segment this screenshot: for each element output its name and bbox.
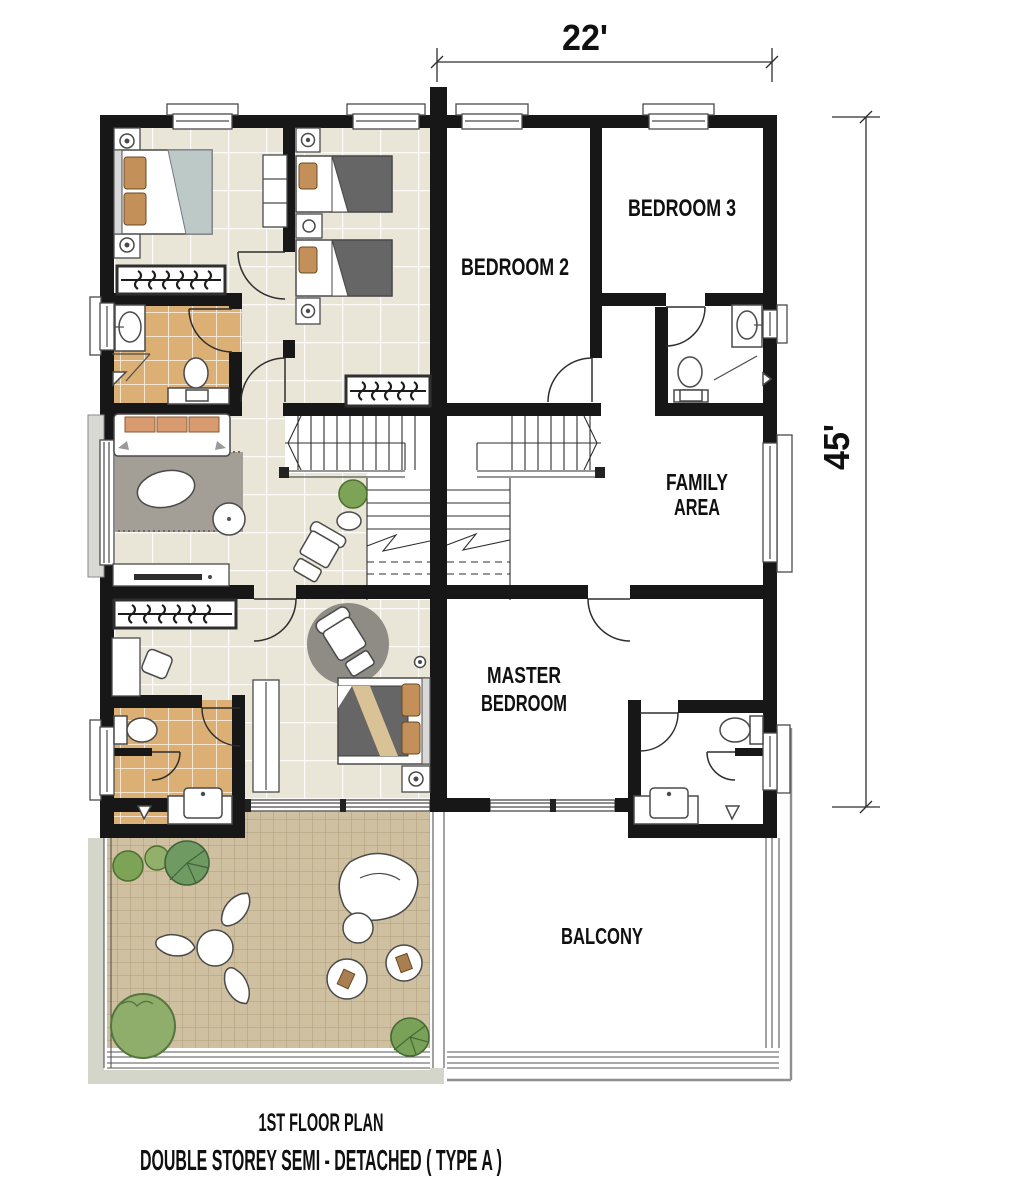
window-master-bath-left — [90, 720, 114, 800]
tv-console-icon — [113, 564, 229, 586]
sofa-icon — [114, 414, 230, 456]
door-bedroom3-right — [666, 307, 705, 346]
wardrobe-icon — [117, 266, 225, 294]
outdoor-table-icon — [343, 913, 373, 943]
toilet-icon — [680, 390, 702, 401]
staircase-right — [447, 415, 605, 600]
floor-plan-drawing: BEDROOM 2 BEDROOM 3 FAMILY AREA MASTER B… — [0, 0, 1012, 1202]
master-bed-icon — [338, 678, 430, 764]
window-family-right — [763, 435, 792, 572]
wardrobe-icon — [114, 600, 236, 628]
party-wall — [430, 87, 447, 812]
side-table-icon — [337, 512, 361, 530]
label-family-area-1: FAMILY — [666, 469, 728, 495]
label-master-1: MASTER — [487, 662, 561, 688]
label-family-area-2: AREA — [674, 494, 720, 520]
wardrobe-icon — [346, 376, 430, 406]
plant-icon — [111, 994, 175, 1058]
plan-title: 1ST FLOOR PLAN — [259, 1109, 384, 1137]
dimension-depth: 45' — [816, 111, 880, 813]
window-bedroom2-top — [456, 104, 528, 129]
label-bedroom2: BEDROOM 2 — [461, 254, 569, 281]
dresser-icon — [263, 155, 287, 227]
door-bedroom2-right — [548, 358, 592, 402]
toilet-icon — [750, 716, 763, 744]
window-bedroom3-top — [643, 104, 714, 129]
window-bath3-right — [763, 305, 787, 343]
toilet-icon — [186, 390, 208, 401]
label-bedroom3: BEDROOM 3 — [628, 195, 736, 222]
dimension-depth-label: 45' — [816, 424, 857, 470]
twin-bed-icon — [296, 156, 392, 212]
plant-icon — [113, 851, 143, 881]
right-sliding-door — [490, 799, 615, 812]
twin-bed-icon — [296, 240, 392, 296]
window-master-bath-right — [763, 725, 790, 793]
plant-icon — [339, 480, 367, 508]
label-master-2: BEDROOM — [481, 690, 567, 716]
queen-bed-icon — [114, 150, 212, 234]
dimension-width: 22' — [431, 17, 778, 82]
window-bedroomB-top — [347, 104, 425, 129]
plant-icon — [391, 1018, 429, 1056]
window-bedroom1-top — [167, 104, 238, 129]
door-master-right — [588, 599, 630, 641]
master-bath-right-fixtures — [634, 716, 763, 824]
bathroom3-right-fixtures — [674, 305, 771, 402]
desk-icon — [112, 638, 140, 696]
shower-drain-icon — [726, 806, 739, 819]
floor-plan-page: BEDROOM 2 BEDROOM 3 FAMILY AREA MASTER B… — [0, 0, 1012, 1202]
plan-subtitle: DOUBLE STOREY SEMI - DETACHED ( TYPE A ) — [140, 1145, 502, 1177]
plant-icon — [165, 841, 209, 885]
door-shower-right — [707, 752, 735, 780]
outdoor-chair-icon — [327, 959, 367, 999]
toilet-icon — [114, 716, 127, 744]
dimension-width-label: 22' — [562, 17, 608, 58]
outdoor-chair-icon — [386, 945, 422, 981]
window-bath-left — [90, 297, 114, 355]
label-balcony: BALCONY — [561, 923, 643, 949]
title-block: 1ST FLOOR PLAN DOUBLE STOREY SEMI - DETA… — [140, 1109, 502, 1177]
outdoor-table-icon — [197, 930, 233, 966]
door-master-bath-right — [640, 713, 678, 751]
